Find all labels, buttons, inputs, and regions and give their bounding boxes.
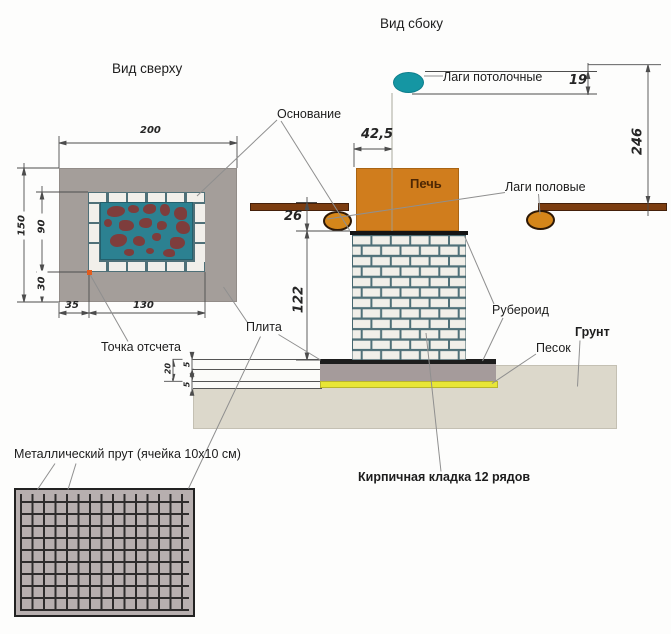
dim-value-246: 246	[631, 125, 646, 159]
dim-value-42-5: 42,5	[361, 127, 393, 142]
dim-value-122: 122	[292, 283, 307, 317]
floor-joists-label: Лаги половые	[505, 180, 586, 194]
dimension-and-leader-lines	[0, 0, 671, 634]
metal-mesh-label: Металлический прут (ячейка 10х10 см)	[14, 447, 241, 461]
top-view-title: Вид сверху	[112, 61, 182, 76]
side-view-title: Вид сбоку	[380, 16, 443, 31]
dim-value-90: 90	[37, 214, 48, 240]
ceiling-joists-label: Лаги потолочные	[443, 70, 542, 84]
slab-label: Плита	[246, 320, 282, 334]
dim-value-26: 26	[284, 209, 302, 224]
dim-value-200: 200	[140, 125, 161, 136]
brickwork-label: Кирпичная кладка 12 рядов	[358, 470, 530, 484]
leader-lines	[38, 76, 581, 490]
sand-label: Песок	[536, 341, 571, 355]
dim-value-5-top: 5	[183, 358, 192, 372]
dim-value-130: 130	[133, 300, 154, 311]
reference-point-label: Точка отсчета	[101, 340, 181, 354]
dim-246	[588, 65, 661, 216]
base-label: Основание	[277, 107, 341, 121]
dim-value-30: 30	[37, 271, 48, 297]
ruberoid-label: Рубероид	[492, 303, 549, 317]
dim-35-130	[59, 272, 205, 318]
dim-value-19: 19	[569, 73, 587, 88]
dim-value-150: 150	[17, 212, 28, 240]
reference-point-marker	[87, 270, 92, 275]
dim-value-5-bottom: 5	[183, 378, 192, 392]
dim-26-122	[296, 197, 350, 360]
furnace-label: Печь	[410, 176, 442, 191]
dim-value-20: 20	[164, 359, 173, 379]
ground-label: Грунт	[575, 325, 610, 339]
dim-200	[59, 136, 237, 168]
stove-foundation-diagram: Вид сбоку Вид сверху Основание Лаги пото…	[0, 0, 671, 634]
dim-value-35: 35	[65, 300, 79, 311]
dim-42-5	[354, 143, 392, 167]
